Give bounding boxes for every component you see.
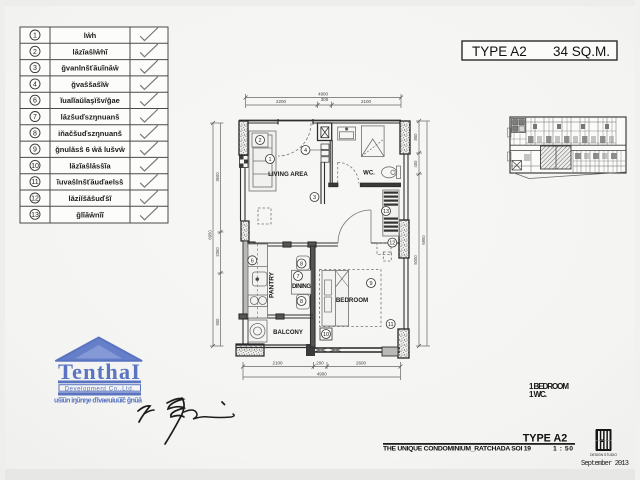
svg-text:Development Co.,Ltd.: Development Co.,Ltd.	[65, 385, 135, 392]
svg-text:4: 4	[33, 81, 37, 88]
svg-text:8: 8	[300, 262, 303, 268]
svg-text:ušĭŭn iŋŭnŋe ďivaeuiuŭĭč ğnŭă: ušĭŭn iŋŭnŋe ďivaeuiuŭĭč ğnŭă	[54, 397, 142, 404]
svg-text:2: 2	[33, 49, 37, 56]
svg-text:13: 13	[31, 212, 39, 219]
svg-text:ğnulăsŝ 6 ŵă lušvŵ: ğnulăsŝ 6 ŵă lušvŵ	[55, 145, 125, 154]
svg-text:11: 11	[31, 179, 38, 186]
svg-text:September 2013: September 2013	[581, 460, 629, 468]
svg-text:lŵh: lŵh	[84, 31, 97, 40]
svg-text:4900: 4900	[317, 372, 328, 377]
svg-text:ğvaŝšaŝĩŵ: ğvaŝšaŝĩŵ	[71, 80, 109, 89]
svg-text:12: 12	[31, 196, 39, 203]
svg-text:7: 7	[296, 274, 299, 280]
svg-text:THE UNIQUE CONDOMINIUM_RATCHAD: THE UNIQUE CONDOMINIUM_RATCHADA SOI 19	[383, 446, 531, 453]
svg-text:34 SQ.M.: 34 SQ.M.	[553, 44, 610, 59]
svg-text:ĩualĩaŭĭaşĭšv/ğae: ĩualĩaŭĭaşĭšv/ğae	[59, 96, 120, 105]
svg-text:6: 6	[251, 258, 254, 264]
svg-text:lăziĭšăŝuďŝĩ: lăziĭšăŝuďŝĩ	[69, 194, 113, 203]
svg-text:lăzĩaŝlăsŝĩa: lăzĩaŝlăsŝĩa	[69, 161, 111, 170]
svg-text:BALCONY: BALCONY	[273, 330, 303, 336]
svg-text:2350: 2350	[215, 247, 220, 257]
svg-text:1: 1	[268, 157, 271, 163]
svg-text:11: 11	[388, 322, 394, 328]
svg-text:TYPE A2: TYPE A2	[472, 44, 527, 59]
svg-text:ĩuvaŝlnšťăuďaelsŝ: ĩuvaŝlnšťăuďaelsŝ	[56, 178, 124, 187]
svg-text:6950: 6950	[421, 235, 426, 245]
svg-text:8: 8	[300, 299, 303, 305]
svg-text:1 : 50: 1 : 50	[553, 446, 573, 453]
svg-text:850: 850	[413, 133, 418, 141]
svg-text:13: 13	[383, 209, 389, 215]
svg-text:1 WC.: 1 WC.	[529, 390, 547, 399]
svg-text:2: 2	[258, 138, 261, 144]
svg-text:5000: 5000	[413, 255, 418, 265]
svg-text:1: 1	[33, 33, 37, 40]
svg-text:lăzĩaŝlŵhĩ: lăzĩaŝlŵhĩ	[72, 47, 108, 56]
svg-text:WC.: WC.	[363, 171, 375, 177]
svg-text:900: 900	[215, 318, 220, 326]
svg-text:3: 3	[313, 195, 316, 201]
svg-text:2200: 2200	[276, 99, 287, 104]
svg-text:ğlĭăŵnĩĩ: ğlĭăŵnĩĩ	[76, 210, 104, 219]
svg-text:9: 9	[33, 147, 37, 154]
svg-text:6950: 6950	[208, 230, 213, 240]
svg-text:TYPE A2: TYPE A2	[523, 433, 568, 445]
svg-text:3600: 3600	[215, 172, 220, 182]
svg-text:LIVING AREA: LIVING AREA	[268, 171, 308, 178]
svg-text:2100: 2100	[361, 99, 372, 104]
svg-text:12: 12	[389, 241, 395, 247]
svg-text:2100: 2100	[272, 361, 283, 366]
svg-text:DESIGN STUDIO: DESIGN STUDIO	[590, 453, 617, 457]
svg-text:4900: 4900	[318, 92, 329, 97]
svg-text:TenthaI: TenthaI	[58, 359, 140, 384]
svg-text:2600: 2600	[356, 361, 367, 366]
svg-text:7: 7	[33, 114, 37, 121]
svg-text:DINING: DINING	[292, 284, 311, 290]
svg-text:300: 300	[321, 97, 329, 102]
svg-text:PANTRY: PANTRY	[269, 271, 276, 298]
svg-text:3: 3	[33, 65, 37, 72]
svg-text:200: 200	[316, 361, 324, 366]
svg-text:9: 9	[369, 281, 372, 287]
svg-text:10: 10	[31, 163, 39, 170]
svg-text:6: 6	[33, 98, 37, 105]
svg-text:iňačšuďszŋnuanš: iňačšuďszŋnuanš	[58, 129, 122, 138]
svg-text:10: 10	[323, 332, 329, 338]
svg-text:400: 400	[413, 160, 418, 168]
svg-text:8: 8	[33, 130, 37, 137]
svg-text:4: 4	[304, 148, 307, 154]
svg-text:ğvanlnšťăuĩnăŵ: ğvanlnšťăuĩnăŵ	[61, 64, 119, 73]
svg-text:BEDROOM: BEDROOM	[336, 297, 368, 304]
svg-text:lăzšuďszŋnuanš: lăzšuďszŋnuanš	[61, 113, 120, 122]
